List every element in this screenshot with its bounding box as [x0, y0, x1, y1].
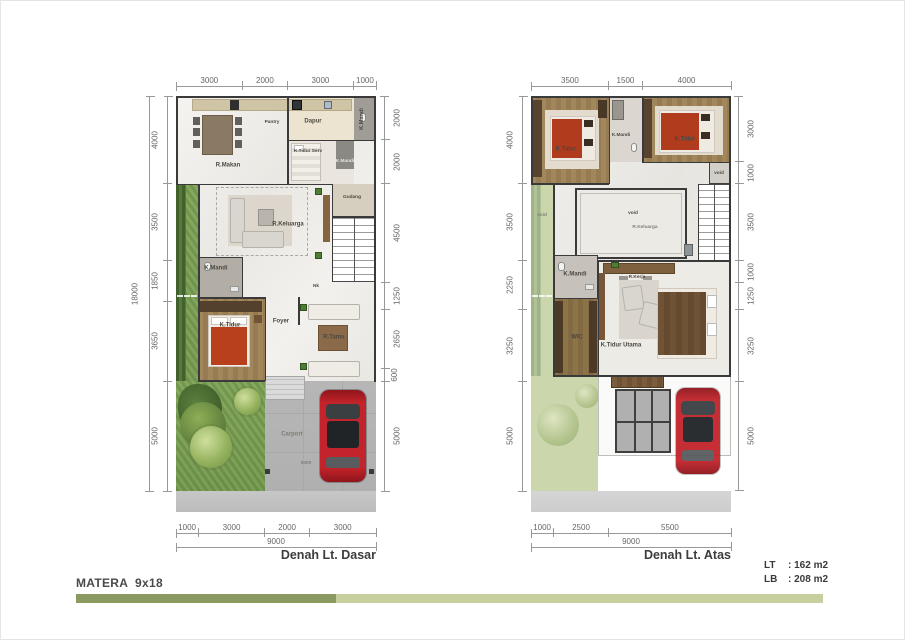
- car: [320, 390, 366, 482]
- room-label: K.Tidur Serv: [294, 149, 322, 154]
- dimension-segment: 3000: [198, 520, 265, 534]
- carport-post: [369, 469, 374, 474]
- ac-unit: [684, 244, 693, 256]
- dimension-segment: 1000: [176, 520, 198, 534]
- wall: [729, 96, 731, 376]
- cabinet: [598, 100, 607, 118]
- dimension-value: 4000: [506, 131, 515, 149]
- dimension-segment: 18000: [135, 96, 150, 491]
- dimension-value: 4000: [151, 131, 160, 149]
- dimension-segment: 2000: [265, 520, 309, 534]
- dimension-value: 2650: [392, 330, 401, 348]
- dimension-value: 1000: [746, 164, 755, 182]
- dimension-segment: 1000: [738, 261, 753, 283]
- wall: [287, 140, 376, 142]
- nightstand: [254, 315, 262, 323]
- wall: [198, 184, 200, 382]
- entry-steps: [265, 376, 305, 400]
- dimension-segment: 2500: [553, 520, 609, 534]
- dim-row-bottom-ground: 1000 3000 2000 3000: [176, 520, 376, 534]
- plan-caption-ground: Denah Lt. Dasar: [176, 548, 376, 562]
- dining-chair: [193, 117, 200, 125]
- storage-floor: [332, 184, 376, 217]
- car-rear-window: [682, 450, 715, 460]
- bed-cover: [552, 119, 582, 159]
- stair-rail: [354, 218, 355, 282]
- dim-col-left-ground: 4000 3500 1850 3650 5000: [153, 96, 168, 491]
- bed-cover: [211, 327, 247, 364]
- wall: [642, 96, 644, 162]
- dimension-value: 1500: [617, 76, 635, 85]
- dimension-segment: 3500: [153, 184, 168, 261]
- dimension-value: 600: [390, 368, 399, 381]
- building-area-row: LB : 208 m2: [764, 574, 828, 585]
- dimension-value: 2000: [278, 523, 296, 532]
- car-windshield: [681, 401, 714, 415]
- dimension-value: 3000: [746, 120, 755, 138]
- wall: [298, 297, 300, 325]
- staircase: [332, 217, 376, 283]
- wall: [609, 96, 611, 184]
- room-label: void: [714, 170, 724, 175]
- dimension-segment: 1850: [153, 261, 168, 302]
- wall: [198, 297, 265, 299]
- room-label: Dapur: [304, 118, 321, 124]
- dim-col-right-ground: 2000 2000 4500 1250 2650 600 5000: [384, 96, 399, 491]
- lounge-chair: [621, 284, 644, 310]
- carport-post: [265, 469, 270, 474]
- dim-col-left-total-ground: 18000: [135, 96, 150, 491]
- dimension-segment: 2000: [384, 140, 399, 184]
- dimension-value: 3250: [746, 337, 755, 355]
- room-label: K.Mandi: [204, 265, 227, 271]
- skylight-mullion: [617, 421, 669, 423]
- car-roof: [683, 417, 713, 443]
- sofa-chaise: [242, 231, 284, 248]
- room-label: R.Keluarga: [272, 221, 303, 227]
- void-inner-line: [580, 193, 681, 253]
- room-label: K.Tidur: [675, 136, 696, 142]
- dimension-value: 3500: [746, 213, 755, 231]
- dimension-value: 1250: [746, 287, 755, 305]
- dimension-segment: 600: [384, 368, 399, 381]
- car-rear-window: [326, 457, 360, 468]
- wall: [531, 183, 609, 185]
- room-label: Pantry: [265, 120, 280, 125]
- ground-floor-plan: R.Makan Pantry Dapur K.Mandi K.Tidur Ser…: [176, 96, 376, 491]
- room-label: K.Tidur: [220, 322, 241, 328]
- dimension-segment: 3250: [508, 310, 523, 381]
- dimension-segment: 1000: [738, 162, 753, 184]
- room-label: R.Tamu: [323, 334, 344, 340]
- dimension-segment: 3250: [738, 310, 753, 381]
- dimension-segment: 4000: [153, 96, 168, 184]
- dimension-value: 2500: [572, 523, 590, 532]
- pillow: [584, 139, 593, 146]
- dimension-segment: 2000: [243, 72, 287, 87]
- room-label: R.Makan: [216, 162, 240, 168]
- tree: [537, 404, 579, 446]
- stair-rail: [714, 185, 715, 260]
- dimension-value: 3500: [506, 213, 515, 231]
- room-label: K.Mandi: [336, 159, 355, 164]
- dining-chair: [235, 117, 242, 125]
- plant-icon: [300, 304, 307, 311]
- toilet-icon: [631, 143, 637, 152]
- pillow: [701, 132, 710, 139]
- stove-icon: [230, 100, 239, 110]
- room-label: R.Kerja: [629, 274, 646, 279]
- dimension-value: 3000: [200, 76, 218, 85]
- dimension-segment: 1500: [609, 72, 642, 87]
- dimension-segment: 1000: [354, 72, 376, 87]
- dimension-segment: 3650: [153, 301, 168, 381]
- road-strip: [176, 491, 376, 512]
- dimension-segment: 9000: [176, 535, 376, 548]
- bed-cover: [661, 113, 699, 151]
- wall: [374, 96, 376, 382]
- room-label: Carport: [281, 431, 302, 437]
- plan-caption-upper: Denah Lt. Atas: [531, 548, 731, 562]
- upper-floor-plan: K.Tidur K.Mandi K.Tidur void void void R…: [531, 96, 731, 491]
- room-label: K.Tidur Utama: [601, 342, 642, 348]
- dimension-segment: 1250: [738, 283, 753, 310]
- plant-icon: [300, 363, 307, 370]
- sink-icon: [324, 101, 332, 109]
- dim-row-bottom-total-ground: 9000: [176, 535, 376, 548]
- dimension-value: 1850: [151, 272, 160, 290]
- dimension-segment: 5000: [153, 381, 168, 491]
- wall: [198, 380, 265, 382]
- wall: [265, 297, 267, 381]
- tree: [190, 426, 232, 468]
- wall: [553, 184, 555, 377]
- building-area-value: : 208 m2: [788, 574, 828, 585]
- dimension-value: 5000: [506, 427, 515, 445]
- car-below: [676, 388, 720, 474]
- dimension-value: 3650: [151, 332, 160, 350]
- building-area-label: LB: [764, 574, 778, 585]
- dim-row-top-ground: 3000 2000 3000 1000: [176, 72, 376, 87]
- dining-chair: [193, 128, 200, 136]
- wall: [332, 184, 334, 283]
- wall: [176, 184, 332, 186]
- dimension-value: 18000: [130, 282, 139, 304]
- tv-console: [323, 195, 330, 242]
- dimension-value: 3500: [561, 76, 579, 85]
- skylight-grid: [615, 389, 671, 453]
- dim-col-right-upper: 3000 1000 3500 1000 1250 3250 5000: [738, 96, 753, 491]
- dimension-segment: 3000: [309, 520, 376, 534]
- area-summary: LT : 162 m2 LB : 208 m2: [764, 560, 828, 588]
- project-name: MATERA 9x18: [76, 576, 163, 590]
- land-area-label: LT: [764, 560, 778, 571]
- oven-icon: [292, 100, 302, 110]
- dimension-value: 1000: [533, 523, 551, 532]
- dimension-segment: 2000: [384, 96, 399, 140]
- pillow: [707, 323, 717, 336]
- boundary-dashes: [177, 295, 197, 297]
- accent-bar: [76, 594, 823, 603]
- dimension-segment: 4500: [384, 184, 399, 283]
- dimension-value: 2250: [506, 276, 515, 294]
- room-label: void: [537, 212, 547, 217]
- guest-sofa: [308, 304, 360, 321]
- wall: [531, 96, 731, 98]
- dim-row-bottom-total-upper: 9000: [531, 535, 731, 548]
- dimension-value: 1000: [178, 523, 196, 532]
- dimension-value: 2000: [392, 153, 401, 171]
- dimension-value: 9000: [622, 537, 640, 546]
- boundary-dashes: [532, 295, 552, 297]
- dimension-segment: 3500: [508, 184, 523, 261]
- dimension-segment: 3000: [738, 96, 753, 162]
- dimension-value: 3250: [506, 337, 515, 355]
- dimension-segment: 3500: [531, 72, 609, 87]
- road-strip: [531, 491, 731, 512]
- dimension-segment: 1250: [384, 283, 399, 310]
- dimension-value: 3000: [223, 523, 241, 532]
- dim-row-top-upper: 3500 1500 4000: [531, 72, 731, 87]
- dimension-segment: 2250: [508, 261, 523, 310]
- room-label: void: [628, 210, 638, 215]
- land-area-row: LT : 162 m2: [764, 560, 828, 571]
- room-label: Foyer: [273, 318, 289, 324]
- wardrobe: [644, 99, 652, 158]
- dimension-value: 1000: [356, 76, 374, 85]
- dimension-value: 3500: [151, 213, 160, 231]
- service-shower: [336, 141, 354, 169]
- dimension-value: 5000: [746, 427, 755, 445]
- dimension-value: 4000: [678, 76, 696, 85]
- dimension-value: 9000: [267, 537, 285, 546]
- dimension-segment: 4000: [508, 96, 523, 184]
- dining-chair: [193, 140, 200, 148]
- dimension-segment: 3000: [176, 72, 243, 87]
- room-label: R.Keluarga: [632, 225, 657, 230]
- dimension-value: 1000: [746, 263, 755, 281]
- dimension-value: 1250: [392, 287, 401, 305]
- wardrobe: [200, 301, 262, 313]
- wic-wardrobe: [555, 301, 563, 373]
- dimension-segment: 3500: [738, 184, 753, 261]
- pillow: [584, 120, 593, 127]
- tv-wall: [599, 273, 605, 340]
- wall: [176, 96, 376, 98]
- dimension-value: 5000: [392, 427, 401, 445]
- void-opening: [575, 188, 686, 258]
- wall: [553, 375, 731, 377]
- pillow: [707, 295, 717, 308]
- inner-dimension: 5000: [301, 461, 312, 466]
- car-windshield: [326, 404, 361, 419]
- room-label: K.Tidur: [556, 146, 577, 152]
- dimension-segment: 5000: [384, 381, 399, 491]
- plant-icon: [315, 252, 322, 259]
- wall: [642, 162, 731, 164]
- dimension-value: 4500: [392, 224, 401, 242]
- toilet-icon: [558, 262, 565, 271]
- wall: [531, 96, 533, 184]
- accent-bar-dark-segment: [76, 594, 336, 603]
- dimension-segment: 5500: [609, 520, 731, 534]
- shower: [612, 100, 624, 120]
- master-bed-cover: [658, 292, 706, 355]
- wall: [332, 216, 376, 218]
- wall: [598, 261, 600, 376]
- wall: [698, 184, 700, 261]
- dimension-value: 5000: [151, 427, 160, 445]
- dimension-segment: 5000: [508, 381, 523, 491]
- dimension-segment: 3000: [287, 72, 354, 87]
- dimension-value: 2000: [392, 109, 401, 127]
- wardrobe: [533, 100, 542, 177]
- dimension-segment: 9000: [531, 535, 731, 548]
- dimension-value: 3000: [334, 523, 352, 532]
- room-label: Nk: [313, 283, 319, 288]
- sink-icon: [230, 286, 239, 292]
- plant-icon: [315, 188, 322, 195]
- dimension-segment: 1000: [531, 520, 553, 534]
- dimension-value: 3000: [312, 76, 330, 85]
- room-label: K.Mandi: [612, 132, 631, 137]
- dimension-segment: 4000: [642, 72, 731, 87]
- dimension-value: 2000: [256, 76, 274, 85]
- wall: [598, 260, 731, 262]
- staircase: [698, 184, 731, 261]
- dimension-value: 5500: [661, 523, 679, 532]
- pillow: [701, 114, 710, 121]
- room-label: WIC: [571, 334, 583, 340]
- room-label: K.Mandi: [359, 108, 365, 130]
- wic-wardrobe: [589, 301, 597, 373]
- planter-icon: [611, 262, 619, 268]
- dimension-segment: 5000: [738, 381, 753, 491]
- guest-sofa: [308, 361, 360, 378]
- car-roof: [327, 421, 358, 449]
- dim-row-bottom-upper: 1000 2500 5500: [531, 520, 731, 534]
- floor-plan-sheet: R.Makan Pantry Dapur K.Mandi K.Tidur Ser…: [0, 0, 905, 640]
- wall: [176, 96, 178, 184]
- room-label: Gudang: [343, 194, 361, 199]
- dining-chair: [235, 140, 242, 148]
- sink-icon: [585, 284, 594, 290]
- dimension-segment: 2650: [384, 310, 399, 368]
- dining-chair: [235, 128, 242, 136]
- land-area-value: : 162 m2: [788, 560, 828, 571]
- dim-col-left-upper: 4000 3500 2250 3250 5000: [508, 96, 523, 491]
- dining-table: [202, 115, 233, 155]
- room-label: K.Mandi: [563, 271, 586, 277]
